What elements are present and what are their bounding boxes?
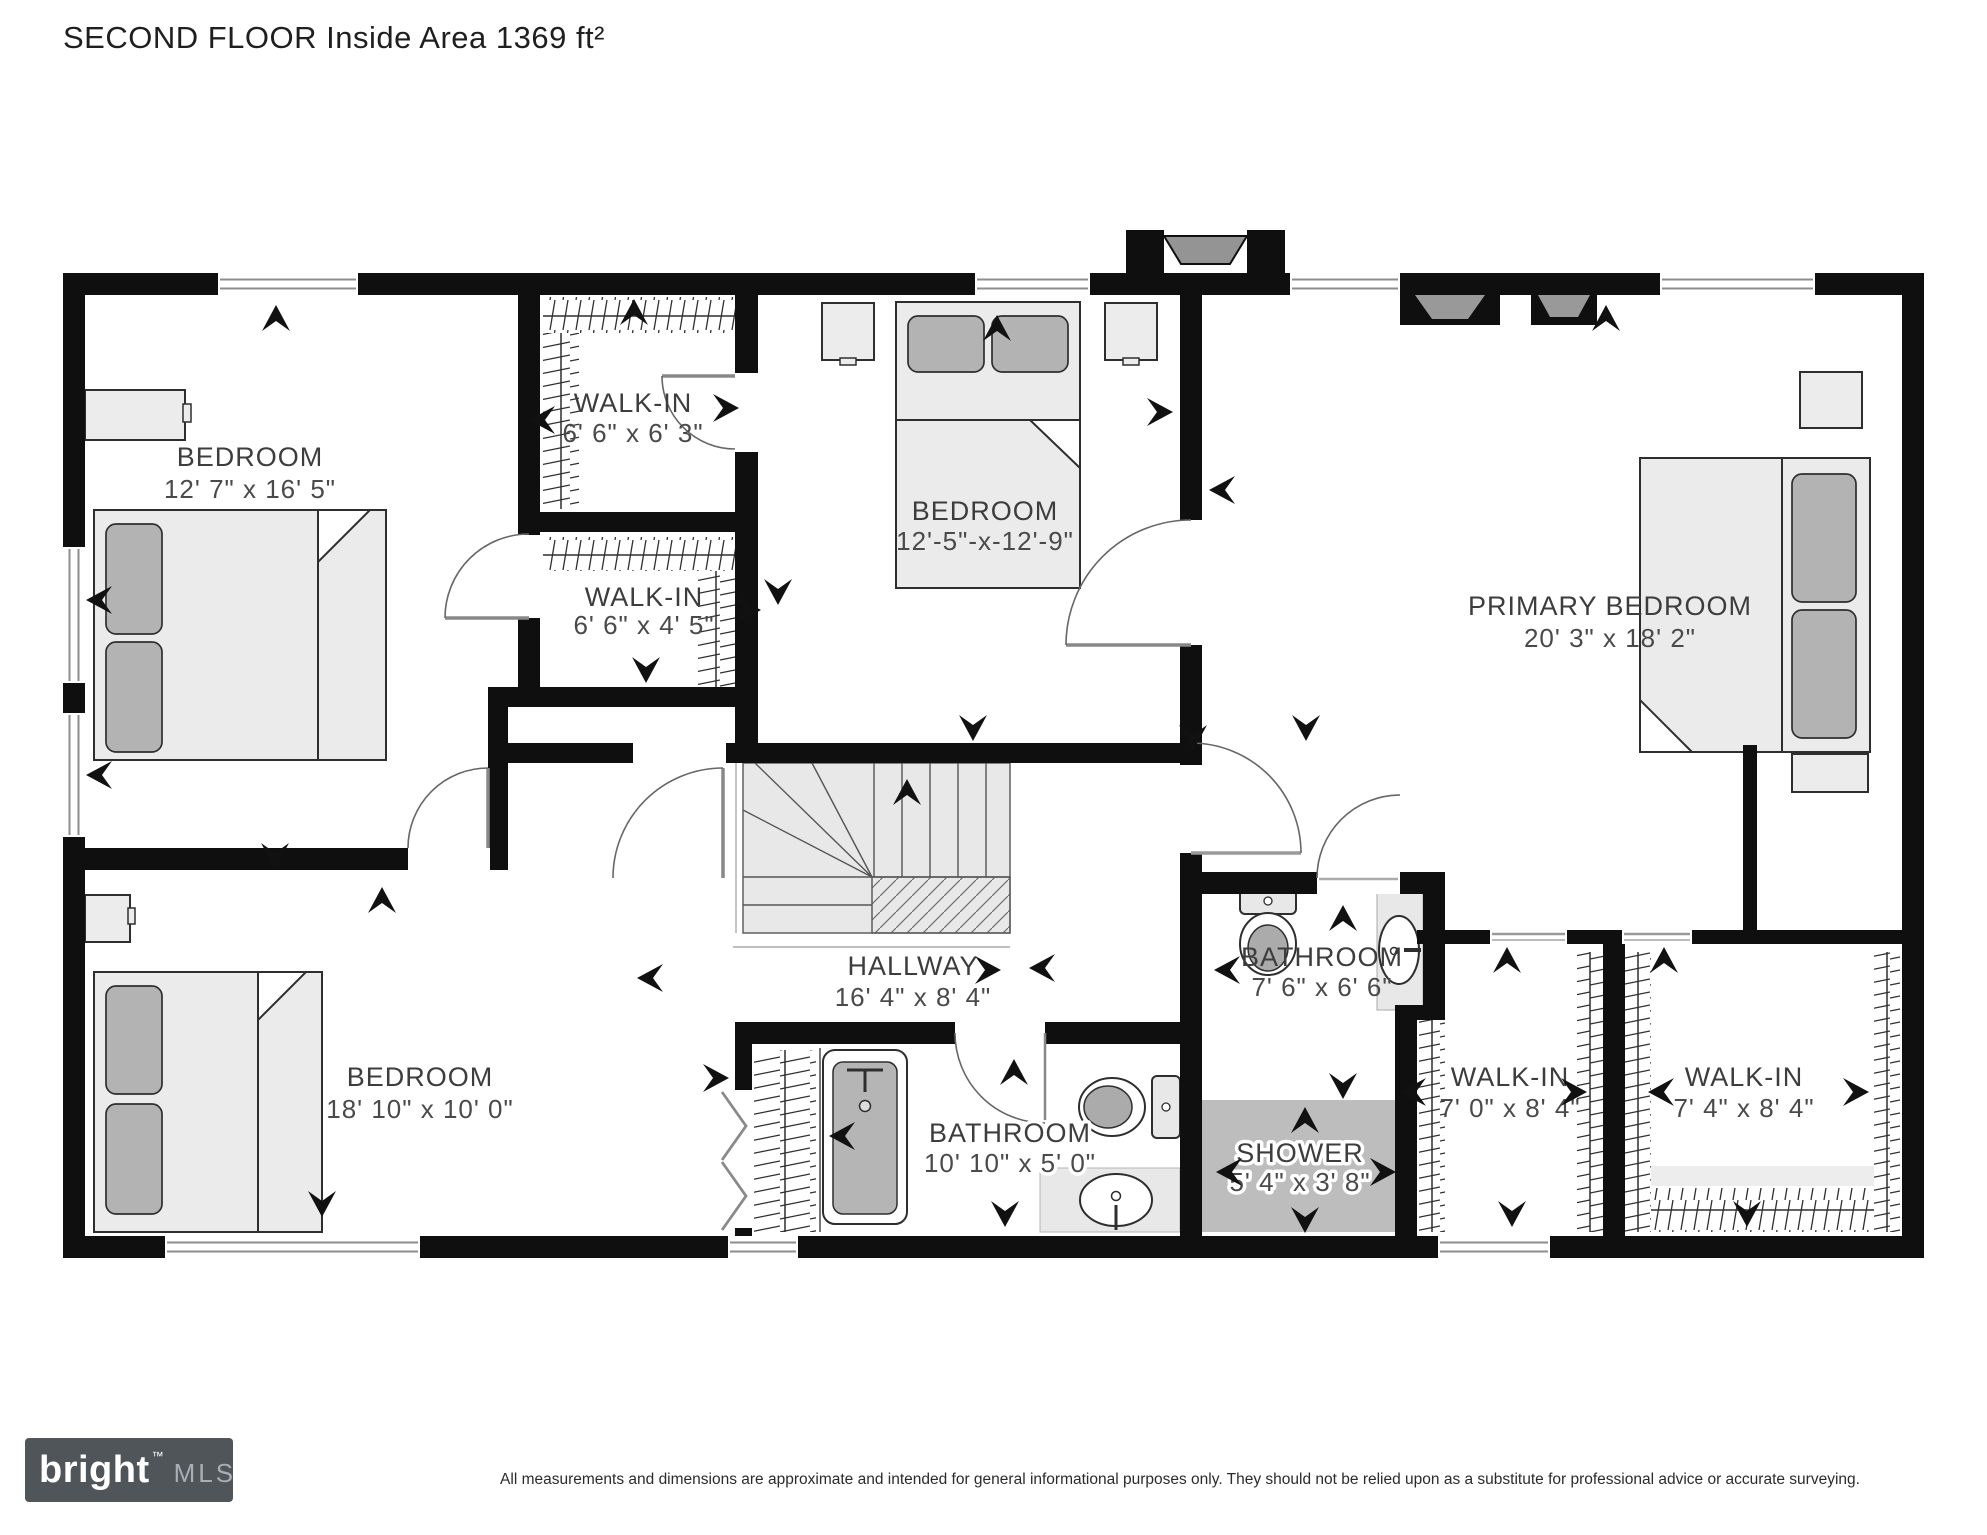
window: [63, 713, 85, 837]
window: [218, 273, 358, 295]
nightstand: [1800, 372, 1862, 428]
pillow: [908, 316, 984, 372]
stairs: [733, 763, 1010, 947]
pillow: [992, 316, 1068, 372]
trademark-symbol: ™: [152, 1449, 164, 1463]
disclaimer-text: All measurements and dimensions are appr…: [400, 1471, 1960, 1489]
room-dims-walk-in-top: 6' 6" x 6' 3": [562, 418, 703, 448]
room-dims-walk-in-right-2: 7' 4" x 8' 4": [1673, 1093, 1814, 1123]
window: [63, 547, 85, 683]
room-label-bedroom-top-left: BEDROOM: [177, 442, 324, 472]
room-dims-bathroom-ensuite: 7' 6" x 6' 6": [1251, 972, 1392, 1002]
brand-name: bright: [39, 1449, 150, 1492]
room-dims-walk-in-mid: 6' 6" x 4' 5": [573, 610, 714, 640]
pocket-door: [1490, 930, 1567, 944]
nightstand: [822, 303, 874, 360]
room-dims-walk-in-right-1: 7' 0" x 8' 4": [1439, 1093, 1580, 1123]
nightstand: [1792, 754, 1868, 792]
pillow: [106, 986, 162, 1094]
window: [165, 1236, 420, 1258]
room-dims-bedroom-bottom-left: 18' 10" x 10' 0": [326, 1094, 514, 1124]
floor-plan: BEDROOM 12' 7" x 16' 5" WALK-IN 6' 6" x …: [0, 0, 1987, 1535]
room-dims-hallway: 16' 4" x 8' 4": [835, 982, 992, 1012]
room-label-shower: SHOWER: [1236, 1138, 1364, 1168]
pillow: [106, 642, 162, 752]
window: [1438, 1236, 1550, 1258]
room-dims-shower: 5' 4" x 3' 8": [1229, 1167, 1370, 1197]
brand-mls: MLS: [174, 1452, 236, 1489]
nightstand: [85, 895, 130, 942]
room-label-walk-in-mid: WALK-IN: [585, 582, 704, 612]
room-label-bedroom-bottom-left: BEDROOM: [347, 1062, 494, 1092]
brand-logo: bright™MLS: [25, 1438, 233, 1502]
room-label-bedroom-middle: BEDROOM: [912, 496, 1059, 526]
pocket-door: [1622, 930, 1692, 944]
room-dims-bedroom-top-left: 12' 7" x 16' 5": [164, 474, 336, 504]
window: [975, 273, 1090, 295]
pillow: [1792, 610, 1856, 738]
nightstand: [1105, 303, 1157, 360]
room-dims-bedroom-middle: 12'-5"-x-12'-9": [896, 526, 1074, 556]
room-dims-primary-bedroom: 20' 3" x 18' 2": [1524, 623, 1696, 653]
pillow: [106, 524, 162, 634]
window: [1290, 273, 1400, 295]
toilet: [1079, 1076, 1180, 1138]
room-label-hallway: HALLWAY: [847, 951, 978, 981]
room-label-bathroom-main: BATHROOM: [929, 1118, 1091, 1148]
room-label-walk-in-top: WALK-IN: [574, 388, 693, 418]
room-dims-bathroom-main: 10' 10" x 5' 0": [924, 1148, 1096, 1178]
dresser: [85, 390, 185, 440]
window: [1660, 273, 1815, 295]
room-label-primary-bedroom: PRIMARY BEDROOM: [1468, 591, 1752, 621]
pillow: [1792, 474, 1856, 602]
room-label-walk-in-right-1: WALK-IN: [1451, 1062, 1570, 1092]
window: [728, 1236, 798, 1258]
closet-shelf: [1651, 1166, 1874, 1186]
pillow: [106, 1104, 162, 1214]
room-label-walk-in-right-2: WALK-IN: [1685, 1062, 1804, 1092]
room-label-bathroom-ensuite: BATHROOM: [1241, 942, 1403, 972]
